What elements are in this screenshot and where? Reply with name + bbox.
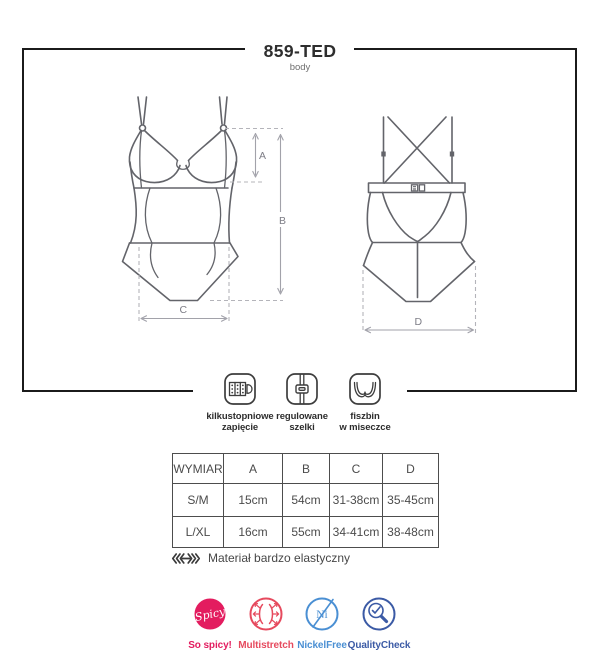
col-header-c: C — [330, 454, 383, 484]
product-spec-sheet: { "header": { "title": "859-TED", "subti… — [0, 0, 600, 663]
size-cell: S/M — [173, 484, 224, 517]
quality-check-icon — [359, 596, 399, 632]
dimension-label-a: A — [259, 150, 266, 162]
nickel-free-icon: Ni — [302, 596, 342, 632]
value-cell: 38-48cm — [383, 517, 439, 548]
value-cell: 55cm — [283, 517, 330, 548]
feature-label: szelki — [266, 422, 338, 433]
badge-label: QualityCheck — [343, 640, 415, 651]
col-header-wymiar: WYMIAR — [173, 454, 224, 484]
feature-underwire-cup: fiszbin w miseczce — [329, 372, 401, 433]
material-note-text: Materiał bardzo elastyczny — [208, 551, 350, 565]
underwire-cup-icon — [348, 372, 382, 406]
value-cell: 16cm — [224, 517, 283, 548]
table-row: L/XL 16cm 55cm 34-41cm 38-48cm — [173, 517, 439, 548]
size-table: WYMIAR A B C D S/M 15cm 54cm 31-38cm 35-… — [172, 453, 439, 548]
multistretch-icon — [246, 596, 286, 632]
badge-quality-check: QualityCheck — [343, 596, 415, 651]
feature-label: w miseczce — [329, 422, 401, 433]
value-cell: 15cm — [224, 484, 283, 517]
feature-adjustable-straps: regulowane szelki — [266, 372, 338, 433]
hook-clasp-icon — [223, 372, 257, 406]
col-header-a: A — [224, 454, 283, 484]
front-view-diagram: A B C — [123, 97, 291, 322]
value-cell: 31-38cm — [330, 484, 383, 517]
col-header-d: D — [383, 454, 439, 484]
size-cell: L/XL — [173, 517, 224, 548]
feature-label: fiszbin — [329, 411, 401, 422]
value-cell: 34-41cm — [330, 517, 383, 548]
dimension-label-c: C — [180, 304, 188, 316]
so-spicy-icon: Spicy — [190, 596, 230, 632]
table-header-row: WYMIAR A B C D — [173, 454, 439, 484]
value-cell: 54cm — [283, 484, 330, 517]
material-note: Materiał bardzo elastyczny — [171, 549, 350, 567]
feature-label: regulowane — [266, 411, 338, 422]
adjustable-strap-icon — [285, 372, 319, 406]
col-header-b: B — [283, 454, 330, 484]
back-view-diagram: D — [363, 117, 476, 333]
dimension-label-b: B — [279, 215, 286, 227]
table-row: S/M 15cm 54cm 31-38cm 35-45cm — [173, 484, 439, 517]
stretch-arrow-icon — [171, 552, 201, 565]
dimension-label-d: D — [415, 316, 423, 328]
value-cell: 35-45cm — [383, 484, 439, 517]
